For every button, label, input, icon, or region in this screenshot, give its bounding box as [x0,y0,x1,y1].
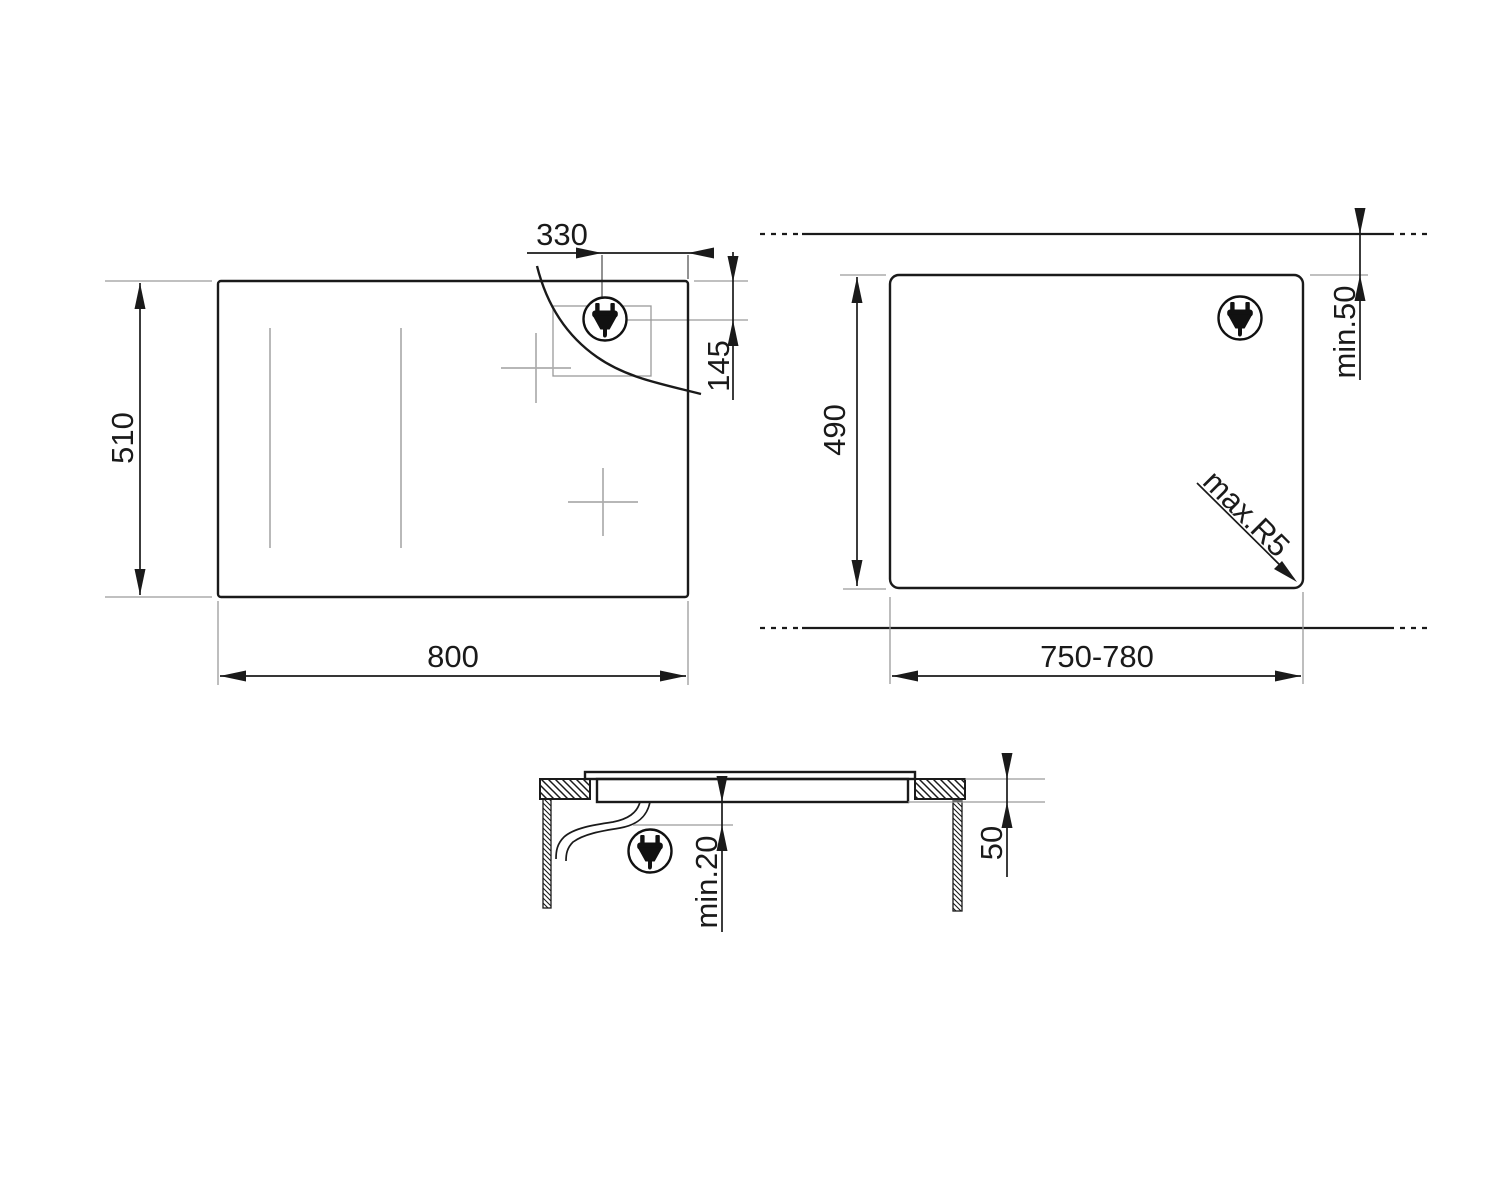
dim-arrow [1274,561,1297,582]
cabinet-wall-left [543,799,551,908]
zone-cross-marker [568,468,638,536]
cabinet-wall-right [953,801,962,911]
dim-arrow [1275,671,1301,682]
dim-arrow [660,671,686,682]
installation-diagram-page: 330 145 510 800 [0,0,1500,1199]
dim-arrow [135,569,146,595]
dim-label-hob-depth: 510 [105,412,140,464]
dim-label-corner-radius: max.R5 [1196,463,1296,563]
dim-arrow [688,248,714,259]
dim-label-hob-width: 800 [427,639,479,674]
dim-label-rear-clearance: min.50 [1327,285,1362,378]
zone-cross-marker [501,333,571,403]
dim-arrow [852,277,863,303]
plan-view: 330 145 510 800 [105,217,748,685]
dim-arrow [1002,753,1013,779]
dim-arrow [1002,802,1013,828]
dim-label-plug-offset-y: 145 [701,340,736,392]
cutout-view: 490 750-780 min.50 max.R5 [760,208,1430,684]
dim-arrow [892,671,918,682]
hob-body-section [597,779,908,802]
section-view: min.20 50 [540,753,1045,932]
dim-arrow [717,776,728,802]
hob-glass-section [585,772,915,779]
dim-label-cutout-width: 750-780 [1040,639,1154,674]
dim-label-plug-offset-x: 330 [536,217,588,252]
dim-label-cutout-depth: 490 [817,404,852,456]
dim-arrow [852,560,863,586]
dim-arrow [728,256,739,282]
dim-label-clearance-below: min.20 [689,835,724,928]
power-plug-icon [1219,297,1262,340]
dim-arrow [1355,208,1366,234]
worktop-section-right [915,779,965,799]
worktop-section-left [540,779,590,799]
installation-diagram: 330 145 510 800 [0,0,1500,1199]
power-plug-icon [629,830,672,873]
dim-label-recess-depth: 50 [974,826,1009,860]
dim-arrow [220,671,246,682]
power-plug-icon [584,298,627,341]
dim-arrow [135,283,146,309]
